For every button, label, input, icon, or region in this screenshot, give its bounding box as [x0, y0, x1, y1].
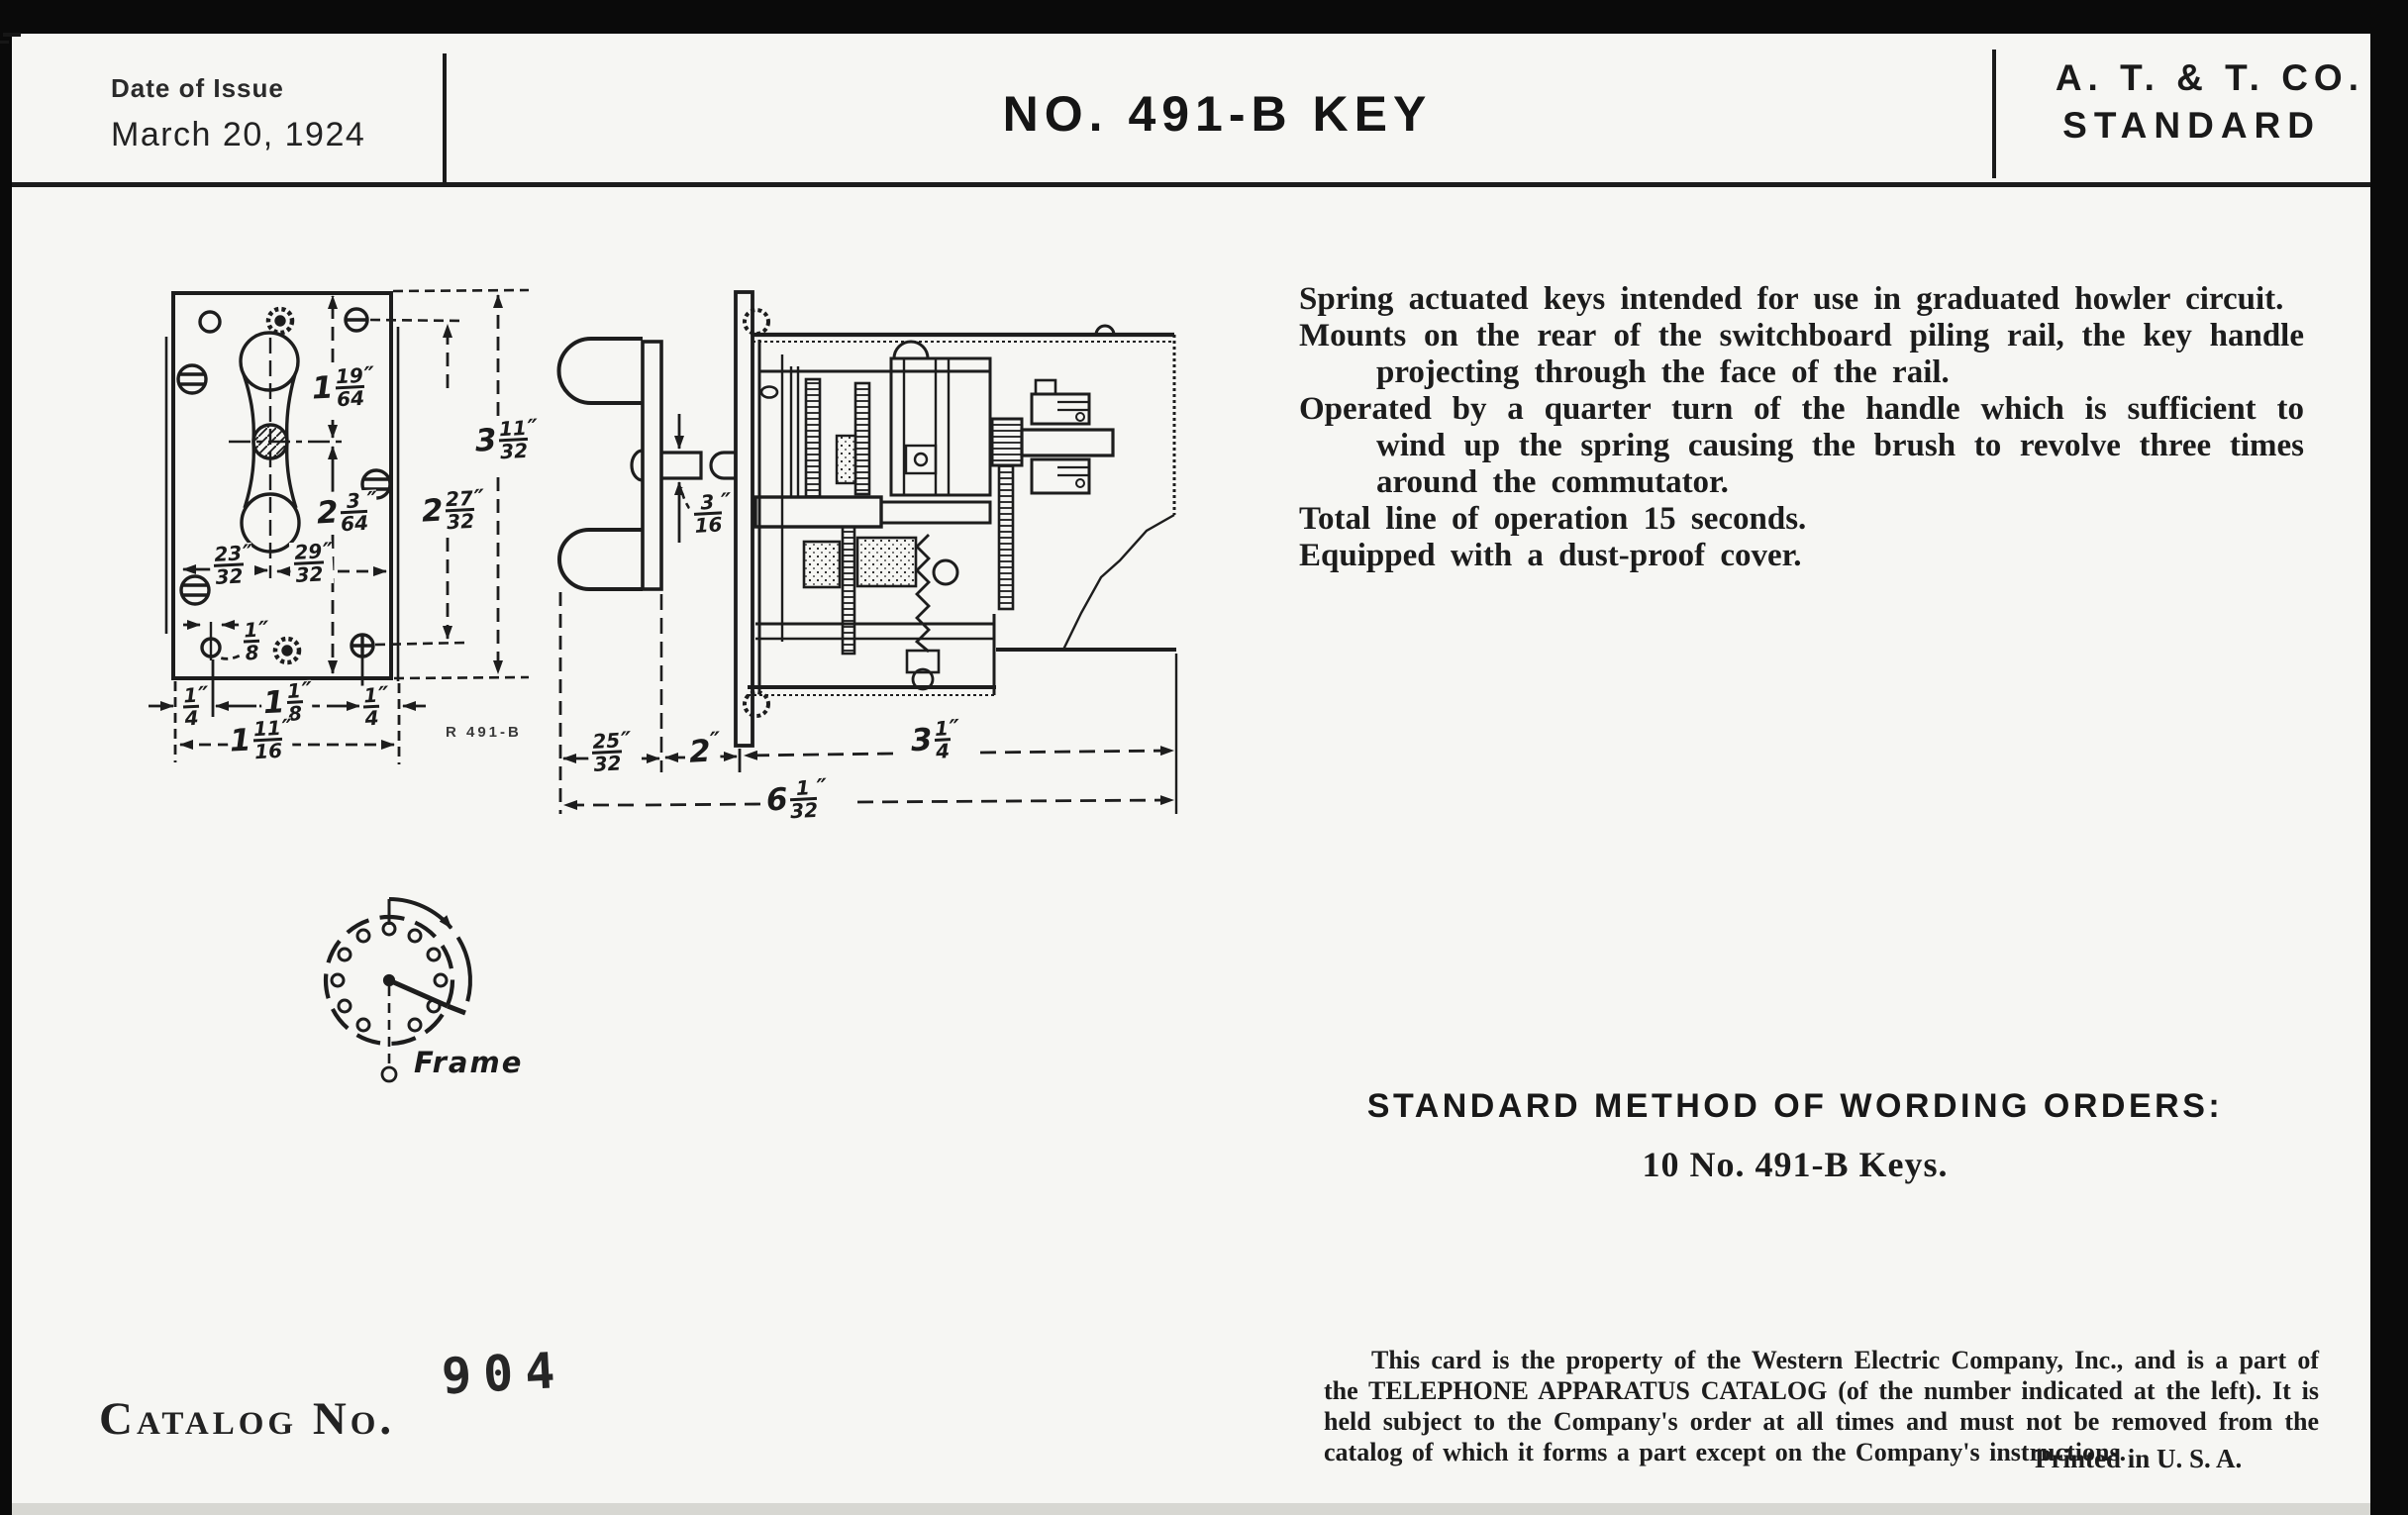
dim-6-1-32: 6132″ — [763, 776, 828, 822]
dim-1-8: 18″ — [239, 619, 269, 662]
paper-background — [12, 34, 2370, 1515]
scan-smudge — [0, 41, 9, 44]
dim-1-11-16: 11116″ — [227, 717, 293, 762]
ordering-section: STANDARD METHOD OF WORDING ORDERS: 10 No… — [1350, 1087, 2241, 1185]
date-of-issue-box: Date of Issue March 20, 1924 — [111, 73, 365, 154]
scan-smudge — [3, 33, 21, 37]
description-item: Operated by a quarter turn of the handle… — [1299, 391, 2304, 501]
standard-label: STANDARD — [1996, 105, 2364, 147]
ordering-example: 10 No. 491-B Keys. — [1350, 1144, 2241, 1185]
ordering-heading: STANDARD METHOD OF WORDING ORDERS: — [1350, 1087, 2241, 1126]
scan-edge-left — [0, 0, 12, 1515]
dim-3-1-4: 314″ — [908, 718, 960, 763]
description-block: Spring actuated keys intended for use in… — [1299, 281, 2304, 574]
dim-2-27-32: 22732″ — [419, 487, 485, 533]
dim-1-4-right: 14″ — [358, 684, 389, 728]
dim-2-3-64: 2364″ — [314, 489, 378, 535]
dim-1-4-left: 14″ — [178, 684, 209, 728]
description-item: Spring actuated keys intended for use in… — [1299, 281, 2304, 318]
date-of-issue-label: Date of Issue — [111, 73, 365, 104]
frame-label: Frame — [414, 1046, 523, 1079]
page-title: NO. 491-B KEY — [443, 85, 1992, 143]
dim-2: 2″ — [686, 730, 721, 768]
description-item: Equipped with a dust-proof cover. — [1299, 538, 2304, 574]
catalog-number-label: Catalog No. — [99, 1392, 395, 1446]
dim-25-32: 2532″ — [587, 730, 632, 774]
catalog-card-page: Date of Issue March 20, 1924 NO. 491-B K… — [0, 0, 2408, 1515]
att-co-label: A. T. & T. CO. — [1996, 57, 2364, 99]
header-rule — [12, 182, 2370, 187]
description-item: Total line of operation 15 seconds. — [1299, 501, 2304, 538]
dim-29-32: 2932″ — [289, 541, 334, 585]
scan-edge-right — [2370, 0, 2408, 1515]
drawing-reference-stamp: R 491-B — [446, 724, 522, 741]
dim-23-32: 2332″ — [209, 543, 253, 587]
scan-edge-top — [0, 0, 2408, 34]
att-standard-box: A. T. & T. CO. STANDARD — [1996, 57, 2364, 147]
scan-edge-bottom — [12, 1503, 2370, 1515]
printed-in-usa: Printed in U. S. A. — [2035, 1444, 2242, 1474]
description-item: Mounts on the rear of the switchboard pi… — [1299, 318, 2304, 391]
dim-3-11-32: 31132″ — [472, 417, 539, 462]
catalog-number-value: 904 — [441, 1342, 568, 1406]
date-of-issue-value: March 20, 1924 — [111, 116, 365, 154]
dim-3-16: 316″ — [689, 491, 732, 536]
dim-1-19-64: 11964″ — [309, 364, 375, 410]
